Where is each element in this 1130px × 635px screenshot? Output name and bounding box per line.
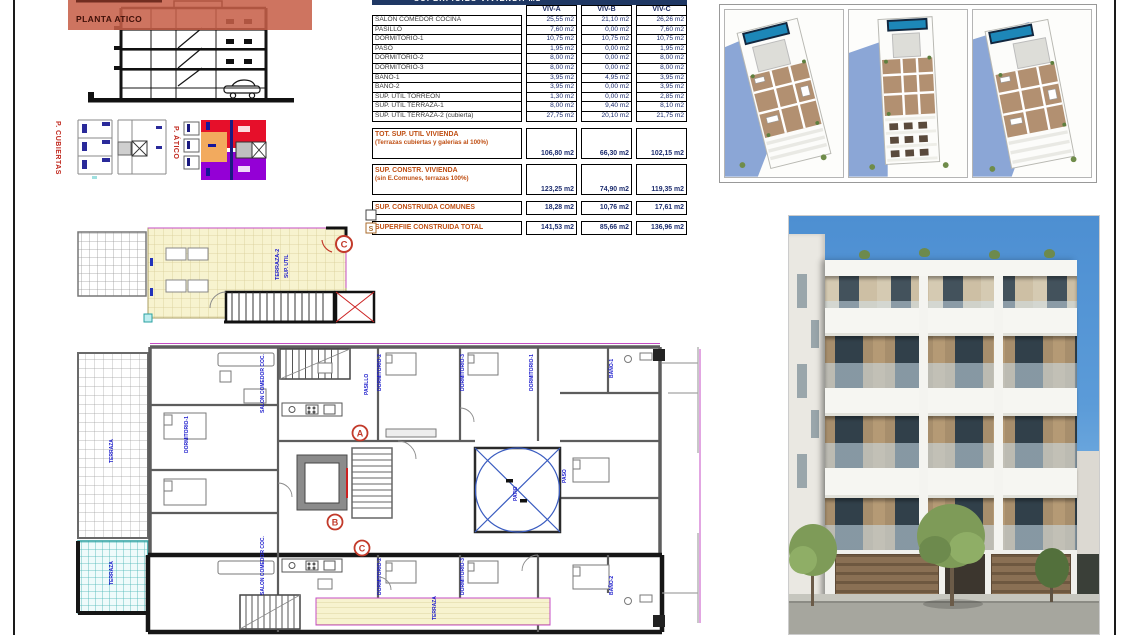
stairs-bottom [240, 595, 300, 629]
elevator-x-icon [132, 141, 147, 156]
area-table-title: SUPERFICIES VIVIENDA M2 [414, 0, 541, 3]
kitchen-counter-upper [282, 403, 342, 416]
car-in-garage-icon [224, 80, 260, 98]
neighbor-plan-partial [662, 347, 698, 623]
svg-text:C: C [359, 544, 366, 554]
sheet-frame-right [1114, 0, 1116, 635]
facade-floor-3 [825, 336, 1077, 388]
summary-total-util: TOT. SUP. UTIL VIVIENDA(Terrazas cubiert… [372, 128, 687, 159]
svg-text:BAÑO-1: BAÑO-1 [608, 359, 615, 378]
svg-text:TERRAZA: TERRAZA [432, 596, 438, 620]
street-tree-small [788, 516, 843, 608]
svg-text:PASO: PASO [562, 469, 568, 483]
sheet-canvas: PLANTA ATICO P. CUBIERTAS P. ÁTICO [0, 0, 1130, 635]
svg-text:DORMITORIO-2: DORMITORIO-2 [377, 558, 383, 595]
unit-marker-a: A [353, 426, 368, 441]
svg-text:TERRAZA: TERRAZA [109, 439, 115, 463]
svg-text:TERRAZA: TERRAZA [109, 561, 115, 585]
sheet-frame-left [13, 0, 15, 635]
svg-text:PATIO: PATIO [513, 486, 519, 501]
svg-text:SALON COMEDOR COC.: SALON COMEDOR COC. [260, 354, 266, 414]
atico-key-plan [182, 118, 270, 184]
roof-stairs [226, 292, 334, 322]
pergola-grid [78, 232, 146, 296]
aerial-render-3 [972, 9, 1092, 178]
svg-text:C: C [341, 240, 348, 251]
svg-text:PASILLO: PASILLO [364, 374, 370, 395]
main-floor-plan: A B C TERRAZA TERRAZA SALON COMEDOR COC.… [68, 333, 703, 633]
summary-construida-total: SUPERFIIE CONSTRUIDA TOTAL 141,53 m2 85,… [372, 221, 687, 235]
stairs-top [280, 349, 350, 379]
row-value: 27,75 m2 [526, 111, 577, 122]
row-label: SUP. ÚTIL TERRAZA-2 (cubierta) [372, 111, 522, 122]
unit-marker-b: B [328, 515, 343, 530]
svg-text:BAÑO-2: BAÑO-2 [608, 576, 615, 595]
aerial-renders-panel [719, 4, 1097, 183]
roof-key-plan [72, 116, 174, 186]
svg-text:DORMITORIO-3: DORMITORIO-3 [460, 558, 466, 595]
summary-constr-vivienda: SUP. CONSTR. VIVIENDA(sin E.Comunes, ter… [372, 164, 687, 195]
svg-text:B: B [332, 518, 339, 528]
atico-plan-label: P. ÁTICO [172, 126, 179, 159]
section-overlay-label: PLANTA ATICO [76, 14, 142, 24]
roof-label-suputil: SUP. UTIL [284, 254, 290, 278]
roof-label-terraza: TERRAZA-2 [275, 249, 281, 280]
facade-render [788, 215, 1100, 635]
svg-text:S: S [369, 226, 374, 233]
svg-text:DORMITORIO-2: DORMITORIO-2 [377, 354, 383, 391]
pool [888, 19, 927, 31]
facade-floor-2 [825, 416, 1077, 468]
svg-text:A: A [357, 429, 364, 439]
svg-text:DORMITORIO-1: DORMITORIO-1 [529, 354, 535, 391]
roof-terrace-plan: C TERRAZA-2 SUP. UTIL S [74, 218, 386, 344]
legend-boxes: S [366, 210, 376, 233]
unit-marker-c: C [355, 541, 370, 556]
kitchen-counter-lower [282, 559, 342, 572]
svg-text:DORMITORIO-3: DORMITORIO-3 [460, 354, 466, 391]
building-section-drawing: PLANTA ATICO [66, 0, 314, 114]
area-table-title-band: SUPERFICIES VIVIENDA M2 [372, 0, 687, 5]
svg-text:DORMITORIO-1: DORMITORIO-1 [184, 416, 190, 453]
aerial-render-2 [848, 9, 968, 178]
area-table: SUPERFICIES VIVIENDA M2 VIV-A VIV-B VIV-… [372, 0, 687, 235]
cubiertas-plan-label: P. CUBIERTAS [54, 121, 61, 175]
row-value: 20,10 m2 [581, 111, 632, 122]
street-tree-large [909, 498, 993, 610]
svg-text:SALON COMEDOR COC.: SALON COMEDOR COC. [260, 536, 266, 596]
aerial-render-1 [724, 9, 844, 178]
row-value: 21,75 m2 [636, 111, 687, 122]
street-bush [1032, 546, 1072, 604]
table-row: SUP. ÚTIL TERRAZA-2 (cubierta)27,75 m220… [372, 111, 687, 122]
area-table-rows: SALON COMEDOR COCINA25,55 m221,10 m226,2… [372, 15, 687, 122]
summary-construida-comunes: SUP. CONSTRUIDA COMUNES 18,28 m2 10,76 m… [372, 201, 687, 215]
furniture [164, 353, 652, 605]
